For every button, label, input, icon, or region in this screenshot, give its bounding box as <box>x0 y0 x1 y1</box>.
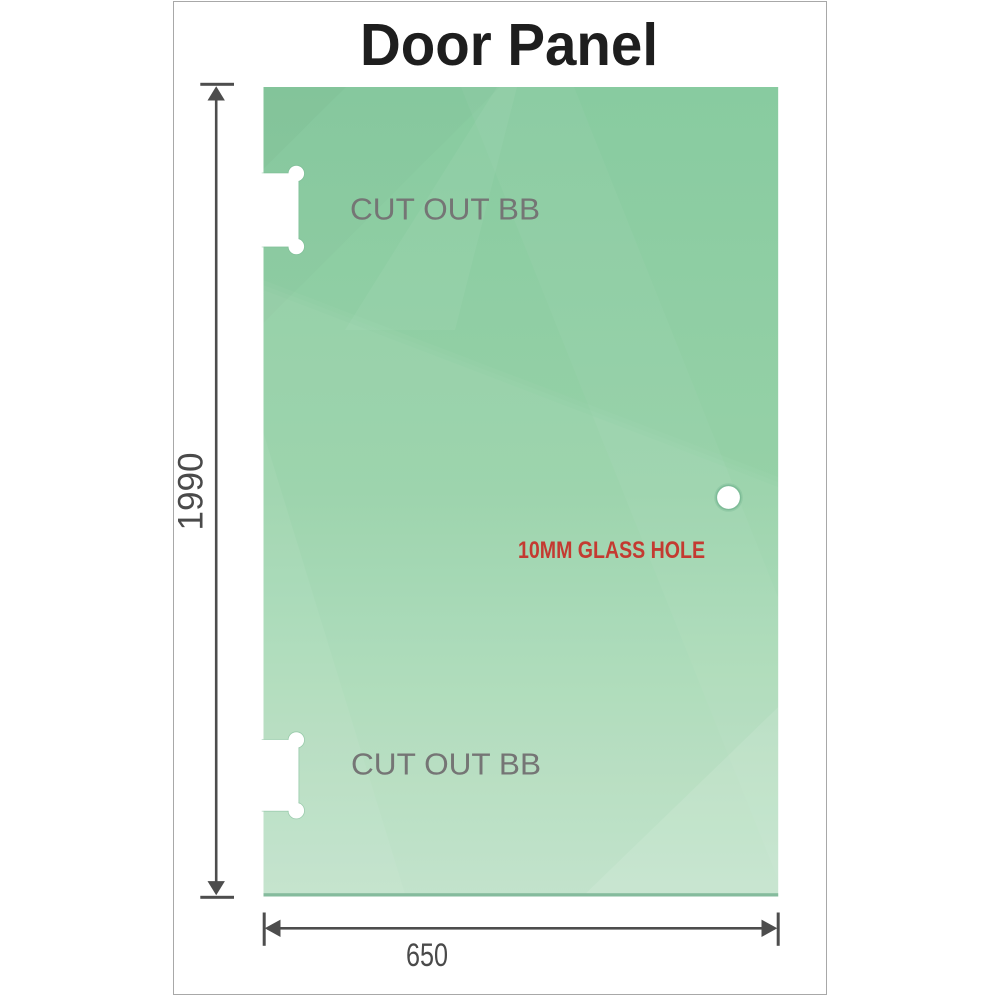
svg-text:CUT OUT BB: CUT OUT BB <box>350 192 540 227</box>
svg-text:1990: 1990 <box>172 453 211 531</box>
svg-text:CUT OUT BB: CUT OUT BB <box>351 747 541 782</box>
svg-text:650: 650 <box>406 937 448 973</box>
svg-text:10MM GLASS HOLE: 10MM GLASS HOLE <box>518 537 705 564</box>
svg-text:Door Panel: Door Panel <box>360 12 658 78</box>
